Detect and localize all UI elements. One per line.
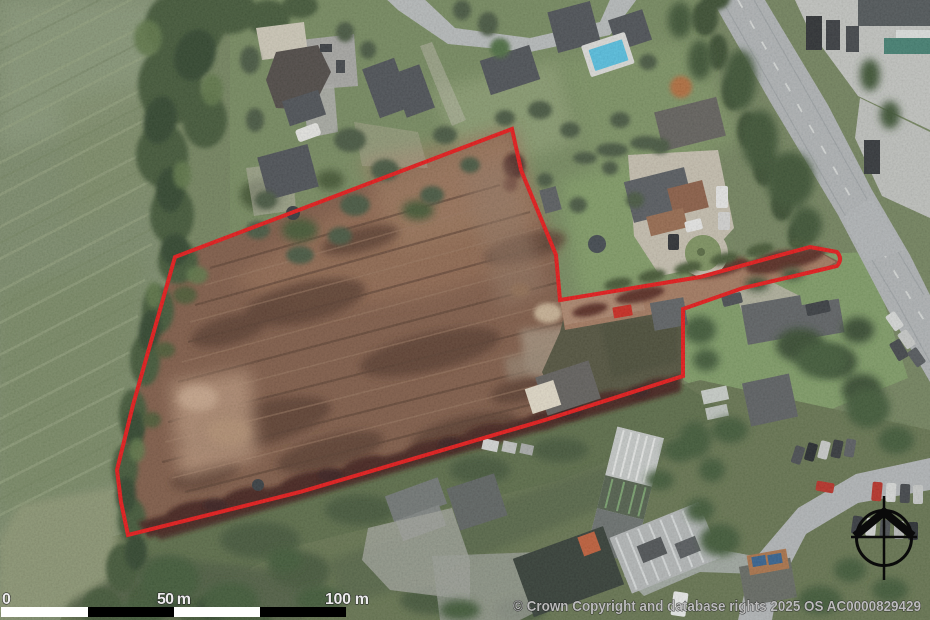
svg-text:50 m: 50 m <box>157 591 191 608</box>
svg-text:100 m: 100 m <box>325 591 369 608</box>
svg-text:0: 0 <box>2 591 11 608</box>
svg-text:© Crown Copyright and database: © Crown Copyright and database rights 20… <box>513 598 921 615</box>
